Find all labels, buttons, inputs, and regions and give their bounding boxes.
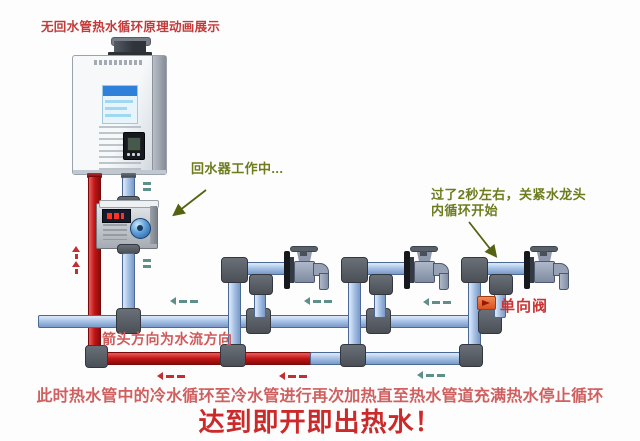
heater-button [132,153,135,156]
heater-button [137,153,140,156]
faucet3-icon [522,245,584,295]
faucet1-drop-elbow [249,274,273,295]
diagram-title: 无回水管热水循环原理动画展示 [41,16,220,35]
flow-left-arrow-icon [170,297,198,305]
faucet-spout-outlet [559,273,569,290]
faucet-handle-stem [540,251,547,256]
energy-label-row [105,114,131,117]
pump-pointer-arrow-icon [175,190,206,214]
pump-dial-knob [130,218,151,239]
pump-dial-center [137,225,143,231]
flow-left-arrow-icon [304,297,332,305]
flow-direction-label: 箭头方向为水流方向 [102,329,233,349]
faucet1-icon [282,245,344,295]
faucet3-drop-elbow [489,274,513,295]
faucet1-riser-elbow [221,257,248,283]
pump-label-text [103,224,127,240]
heater-display [123,132,145,160]
faucet3-pointer-arrow-icon [469,222,495,255]
pump-display [102,209,131,223]
flow-left-arrow-icon [423,298,451,306]
footer-slogan: 达到即开即出热水！ [0,402,640,439]
diagram-canvas: 无回水管热水循环原理动画展示 回水器工作中... 过了2秒左右，关紧水龙头内循环… [0,0,640,441]
faucet-body [294,261,315,283]
bottom-pipe-cold-section [310,352,472,365]
check-valve-arrow-icon [482,300,490,306]
faucet2-drop-elbow [369,274,393,295]
faucet-handle-stem [300,251,307,256]
bottom-right-elbow-fitting [459,344,483,367]
hot-water-bottom-pipe [100,352,312,365]
faucet-timing-line2: 内循环开始 [431,203,498,218]
energy-label-header [103,86,137,96]
pump-display-digit [121,213,124,219]
circulation-pump-icon [96,203,158,249]
pump-status-label: 回水器工作中... [191,158,283,177]
faucet2-riser-pipe [348,272,361,352]
faucet-handle-stem [420,251,427,256]
heater-side-panel [152,56,166,174]
heater-brand-text [94,60,144,65]
cold-flow-dash-icon [143,259,151,268]
heater-button [127,153,130,156]
heater-energy-label [102,85,138,124]
heater-display-screen [127,137,141,151]
flow-left-arrow-icon [157,372,185,380]
flow-left-arrow-icon [279,372,307,380]
energy-label-row [105,107,127,110]
flow-left-arrow-icon [417,371,445,379]
pump-display-digit [114,213,119,219]
pump-side-face [150,206,157,244]
faucet3-riser-elbow [461,257,488,283]
faucet2-riser-elbow [341,257,368,283]
cold-flow-dash-icon [143,182,151,191]
faucet-spout-outlet [439,273,449,290]
bottom-tee-fitting [340,344,366,367]
faucet-timing-line1: 过了2秒左右，关紧水龙头 [431,187,586,202]
check-valve-icon [477,296,496,310]
faucet-body [534,261,555,283]
faucet-body [414,261,435,283]
check-valve-label: 单向阀 [500,295,548,316]
pump-display-digit [107,213,112,219]
hot-flow-up-arrow-icon [72,261,80,274]
faucet2-icon [402,245,464,295]
energy-label-row [105,100,133,103]
faucet-timing-label: 过了2秒左右，关紧水龙头内循环开始 [431,187,586,219]
hot-flow-up-arrow-icon [72,246,80,259]
faucet-spout-outlet [319,273,329,290]
